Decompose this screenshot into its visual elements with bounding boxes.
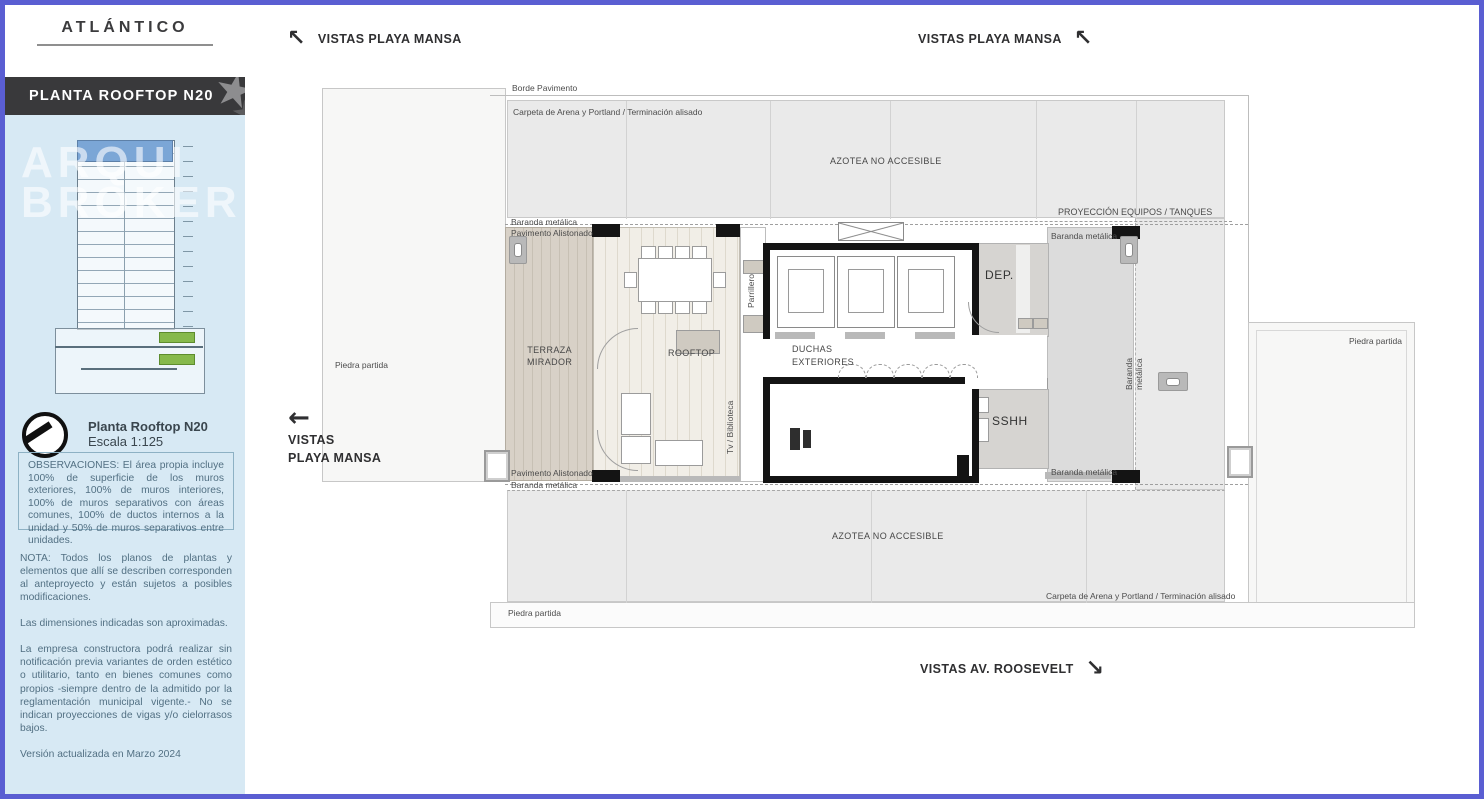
arrow-left-icon: ← — [288, 405, 381, 431]
level-ticks — [183, 146, 193, 328]
scale-block: Planta Rooftop N20 Escala 1:125 — [88, 419, 208, 449]
baranda-label-vertical: Baranda metálica — [1124, 330, 1144, 390]
piedra-partida-right-area — [1248, 322, 1415, 628]
arrow-down-right-icon: ↘ — [1086, 658, 1105, 680]
piedra-partida-label: Piedra partida — [335, 360, 388, 370]
note-version: Versión actualizada en Marzo 2024 — [20, 748, 232, 761]
coffee-table — [655, 440, 703, 466]
baranda-label: Baranda metálica — [511, 217, 577, 227]
drain-icon — [1120, 236, 1138, 264]
piedra-partida-label: Piedra partida — [1349, 336, 1402, 346]
elevator-shaft-icon — [777, 256, 835, 328]
section-tower-top — [77, 140, 173, 162]
azotea-label-top: AZOTEA NO ACCESIBLE — [830, 156, 942, 166]
baranda-label: Baranda metálica — [511, 480, 577, 490]
borde-pavimento-line — [490, 95, 1248, 96]
duchas-label: DUCHAS EXTERIORES — [792, 343, 854, 368]
view-label-top-left: ↖ VISTAS PLAYA MANSA — [287, 28, 462, 50]
dining-table — [638, 258, 712, 302]
carpeta-label-bottom: Carpeta de Arena y Portland / Terminació… — [1046, 591, 1235, 601]
building-section-thumbnail — [55, 140, 203, 395]
baranda-label: Baranda metálica — [1051, 467, 1117, 477]
view-label-text: VISTAS AV. ROOSEVELT — [920, 662, 1074, 676]
wheelchair-mark — [790, 428, 800, 450]
arrow-up-left-icon: ↖ — [1074, 28, 1093, 50]
page: ATLÁNTICO PLANTA ROOFTOP N20 ★ ★ ARQUI B… — [0, 0, 1484, 799]
baranda-label: Baranda metálica — [1051, 231, 1117, 241]
dep-label: DEP. — [985, 268, 1014, 282]
view-label-text: VISTAS — [288, 431, 381, 449]
view-label-left: ← VISTAS PLAYA MANSA — [288, 405, 381, 467]
parrillero-label: Parrillero — [746, 248, 756, 308]
plan-title-band: PLANTA ROOFTOP N20 ★ ★ — [5, 77, 245, 115]
sshh-label: SSHH — [992, 414, 1028, 428]
notes-block: NOTA: Todos los planos de plantas y elem… — [20, 552, 232, 774]
proyeccion-dashed-line — [940, 221, 1232, 222]
elevator-shaft-icon — [897, 256, 955, 328]
scale-plan-name: Planta Rooftop N20 — [88, 419, 208, 434]
view-label-text: PLAYA MANSA — [288, 449, 381, 467]
drain-icon — [509, 236, 527, 264]
elevator-shaft-icon — [837, 256, 895, 328]
landscape-mark — [159, 332, 195, 343]
pavimento-alistonado-label: Pavimento Alistonado — [511, 228, 593, 238]
sofa — [621, 393, 651, 435]
plan-title: PLANTA ROOFTOP N20 — [29, 88, 214, 104]
note-anteproyecto: NOTA: Todos los planos de plantas y elem… — [20, 552, 232, 604]
view-label-bottom: VISTAS AV. ROOSEVELT ↘ — [920, 658, 1104, 680]
tv-biblioteca-label: Tv / Biblioteca — [725, 390, 735, 454]
section-tower-sketch — [77, 140, 175, 330]
wheelchair-mark — [803, 430, 811, 448]
brand-underline — [37, 44, 213, 46]
observations-box: OBSERVACIONES: El área propia incluye 10… — [18, 452, 234, 530]
gargoyle-drain-icon — [1227, 446, 1253, 478]
vent-shaft-icon — [838, 222, 904, 241]
carpeta-label-top: Carpeta de Arena y Portland / Terminació… — [513, 107, 702, 117]
pavimento-alistonado-label: Pavimento Alistonado — [511, 468, 593, 478]
star-icon: ★ — [228, 91, 245, 115]
sidebar: ARQUI BROKER Planta Rooftop N20 Escala 1… — [5, 115, 245, 794]
arrow-up-left-icon: ↖ — [287, 28, 306, 50]
right-terrace-area — [1047, 227, 1134, 482]
brand-title: ATLÁNTICO — [61, 19, 188, 37]
view-label-text: VISTAS PLAYA MANSA — [318, 32, 462, 46]
drain-icon — [1158, 372, 1188, 391]
note-dimensiones: Las dimensiones indicadas son aproximada… — [20, 617, 232, 630]
piedra-partida-bottom-strip — [490, 602, 1415, 628]
azotea-label-bottom: AZOTEA NO ACCESIBLE — [832, 531, 944, 541]
railing-post — [1033, 318, 1048, 329]
rooftop-label: ROOFTOP — [668, 348, 715, 358]
azotea-bottom-area — [507, 490, 1225, 602]
note-empresa: La empresa constructora podrá realizar s… — [20, 643, 232, 734]
brand-header: ATLÁNTICO — [5, 5, 245, 77]
landscape-mark — [159, 354, 195, 365]
gargoyle-drain-icon — [484, 450, 510, 482]
view-label-text: VISTAS PLAYA MANSA — [918, 32, 1062, 46]
borde-pavimento-label: Borde Pavimento — [512, 83, 577, 93]
railing-post — [1018, 318, 1033, 329]
terraza-mirador-label: TERRAZA MIRADOR — [527, 345, 572, 368]
proyeccion-label: PROYECCIÓN EQUIPOS / TANQUES — [1058, 207, 1212, 217]
azotea-right-column — [1135, 218, 1225, 490]
piedra-partida-label: Piedra partida — [508, 608, 561, 618]
scale-value: Escala 1:125 — [88, 434, 208, 449]
view-label-top-right: VISTAS PLAYA MANSA ↖ — [918, 28, 1093, 50]
